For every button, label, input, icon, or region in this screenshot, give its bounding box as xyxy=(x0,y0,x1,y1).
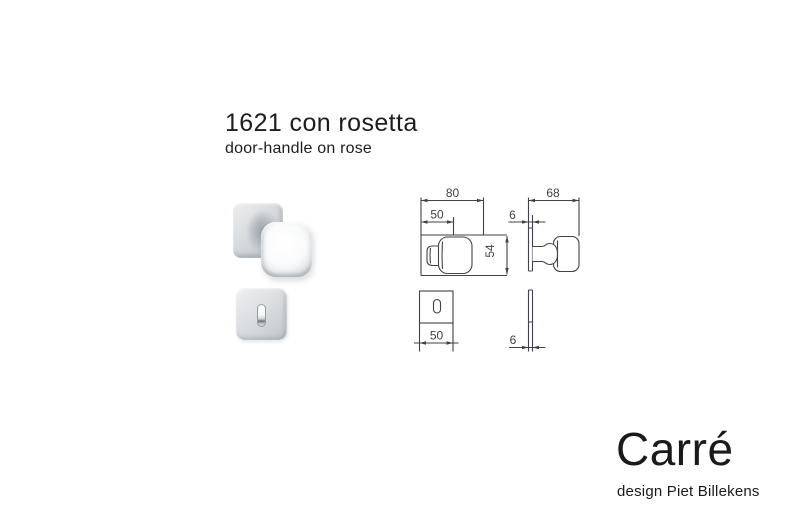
product-title: 1621 con rosetta xyxy=(225,110,418,138)
keyhole-photo xyxy=(257,304,266,327)
dim-label-rose-thickness: 6 xyxy=(509,208,516,222)
brand-logo: Carré xyxy=(616,426,734,472)
dim-label-overall-width: 80 xyxy=(446,186,460,200)
dim-label-thickness: 6 xyxy=(510,333,517,347)
drawing-keyrose-front: 50 xyxy=(414,291,459,352)
product-header: 1621 con rosetta door-handle on rose xyxy=(225,110,418,158)
technical-drawings: 80 50 54 68 6 50 6 xyxy=(400,180,615,370)
drawing-knob-front: 80 50 54 xyxy=(421,186,509,276)
drawing-keyrose-side: 6 xyxy=(509,290,546,352)
dim-label-width: 50 xyxy=(430,329,444,343)
knob-neck-profile xyxy=(533,244,558,265)
knob-face-outline xyxy=(439,237,473,274)
dim-label-rose-width: 50 xyxy=(430,208,444,222)
dim-label-depth: 68 xyxy=(546,186,560,200)
brand-designer: design Piet Billekens xyxy=(617,483,760,500)
dim-label-height: 54 xyxy=(483,244,497,258)
dimension-arrows xyxy=(522,199,579,224)
knob-face-photo xyxy=(261,222,312,277)
drawing-knob-side: 68 6 xyxy=(509,186,580,272)
catalog-page: 1621 con rosetta door-handle on rose 80 … xyxy=(0,0,800,521)
product-subtitle: door-handle on rose xyxy=(225,140,418,158)
keyrose-outline xyxy=(420,291,454,323)
